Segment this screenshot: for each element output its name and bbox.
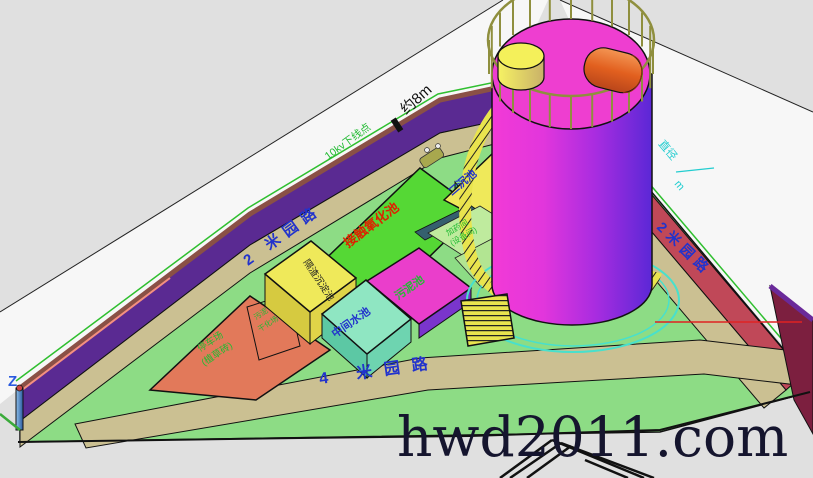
- roof-cylinder-top: [498, 43, 544, 69]
- ucs-z-label: Z: [8, 373, 17, 390]
- access-stair: [461, 294, 514, 346]
- cad-viewport[interactable]: 2 米园路 4 米园路 2米园路 约8m 10kv下线点 直径 m Z 二沉池 …: [0, 0, 813, 478]
- car-wheel-1: [425, 148, 430, 153]
- ucs-z-pole: [16, 388, 23, 430]
- ucs-origin-dot: [17, 385, 23, 391]
- watermark: hwd2011.com: [397, 405, 788, 469]
- site-3d-scene: 2 米园路 4 米园路 2米园路 约8m 10kv下线点 直径 m Z 二沉池 …: [0, 0, 813, 478]
- car-wheel-2: [436, 144, 441, 149]
